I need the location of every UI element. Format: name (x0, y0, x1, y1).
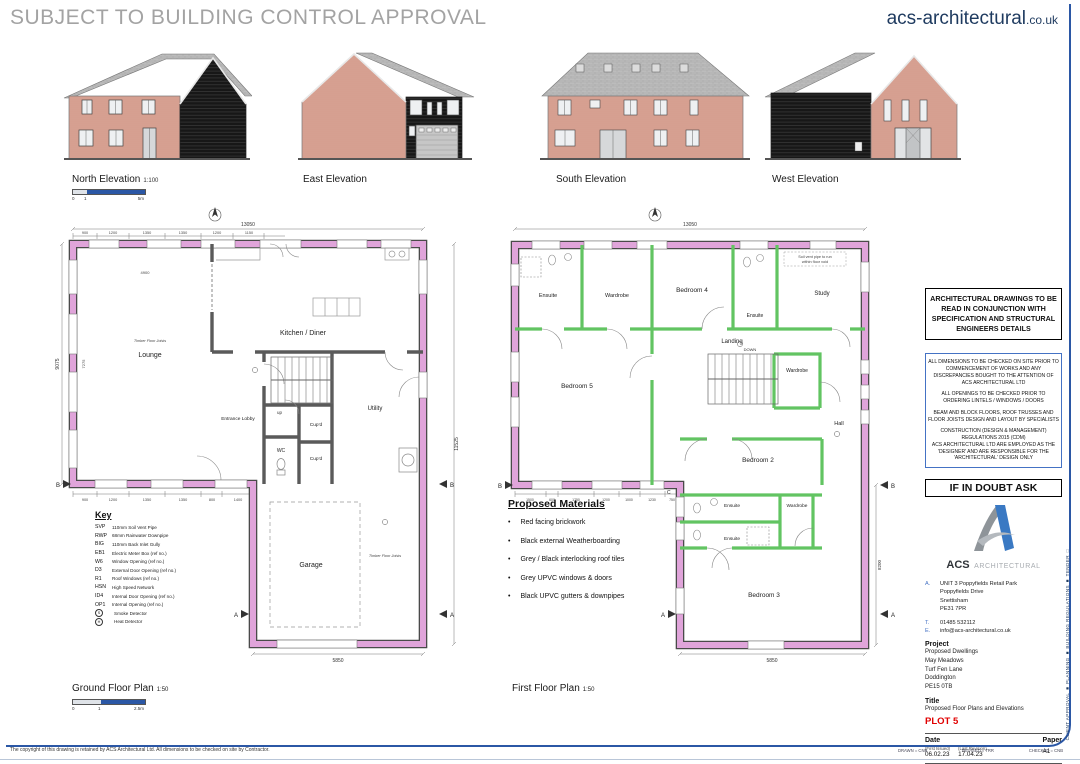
key-item: R1Roof Windows (ref no.) (95, 575, 245, 584)
east-elevation-drawing (296, 40, 476, 172)
room-label: Bedroom 4 (676, 287, 708, 294)
note-paragraph: ALL OPENINGS TO BE CHECKED PRIOR TO ORDE… (928, 391, 1059, 405)
svg-text:1150: 1150 (245, 231, 253, 235)
drawings-note-box: ARCHITECTURAL DRAWINGS TO BE READ IN CON… (925, 288, 1062, 340)
key-item: HSNHigh Speed Network (95, 583, 245, 592)
key-item: RWP68mm Rainwater Downpipe (95, 532, 245, 541)
proposed-materials: Proposed Materials •Red facing brickwork… (508, 498, 680, 612)
svg-text:1200: 1200 (109, 231, 117, 235)
material-item: •Grey / Black interlocking roof tiles (508, 556, 680, 563)
heat-detector-icon: H (95, 618, 103, 626)
website-name: acs-architectural (887, 8, 1026, 29)
stair-direction: up (277, 410, 283, 415)
svg-text:B: B (498, 484, 502, 490)
svg-text:800: 800 (209, 498, 215, 502)
email-address: info@acs-architectural.co.uk (940, 627, 1011, 635)
north-scalebar: 015m (72, 189, 146, 201)
room-label: Utility (368, 406, 383, 412)
material-item: •Grey UPVC windows & doors (508, 575, 680, 582)
room-label: Bedroom 2 (742, 457, 774, 464)
room-label: Wardrobe (787, 503, 808, 509)
svg-text:1200: 1200 (213, 231, 221, 235)
key-item: BIG110mm Back Inlet Gully (95, 540, 245, 549)
west-elevation-label: West Elevation (772, 174, 839, 185)
key-legend: Key SVP110mm Soil Vent Pipe RWP68mm Rain… (95, 510, 245, 626)
revised-by: REVISED = TRR (962, 748, 994, 753)
website-text: acs-architectural.co.uk (887, 8, 1058, 30)
bullet-icon: • (508, 556, 510, 563)
key-title: Key (95, 510, 245, 520)
drawing-title: Proposed Floor Plans and Elevations (925, 705, 1062, 714)
room-label: Bedroom 3 (748, 592, 780, 599)
key-item-smoke: SSmoke Detector (95, 609, 245, 618)
if-in-doubt-ask: IF IN DOUBT ASK (925, 479, 1062, 497)
svg-text:4900: 4900 (141, 270, 151, 275)
south-elevation-drawing (538, 40, 753, 172)
room-label: Cup'd (310, 422, 323, 428)
project-section: Project Proposed DwellingsMay MeadowsTur… (925, 641, 1062, 691)
dim-label: 9075 (55, 358, 61, 369)
key-item-heat: HHeat Detector (95, 618, 245, 627)
materials-title: Proposed Materials (508, 498, 680, 510)
dim-label: 13050 (241, 222, 255, 228)
status-checkboxes: CLIENT APPROVAL ■ PLANNING ■ BUILDING RE… (1065, 548, 1070, 740)
checked-by: CHECKED = CNB (1029, 748, 1063, 753)
room-label: Lounge (138, 352, 161, 359)
bullet-icon: • (508, 519, 510, 526)
svg-text:B: B (891, 484, 895, 490)
copyright-note: The copyright of this drawing is retaine… (10, 747, 270, 753)
title-block: IF IN DOUBT ASK ACS ARCHITECTURAL A.UNIT… (925, 479, 1062, 764)
dim-label: 5850 (332, 658, 343, 664)
bullet-icon: • (508, 538, 510, 545)
key-item: SVP110mm Soil Vent Pipe (95, 523, 245, 532)
material-item: •Black UPVC gutters & downpipes (508, 593, 680, 600)
room-label: Ensuite (747, 313, 764, 319)
svg-text:1400: 1400 (234, 498, 242, 502)
svp-note: within floor void (802, 260, 828, 264)
dim-label: 8200 (877, 559, 882, 570)
dim-label: 13050 (683, 222, 697, 228)
material-item: •Black external Weatherboarding (508, 538, 680, 545)
svg-text:Timber Floor Joists: Timber Floor Joists (369, 554, 401, 558)
svg-text:1350: 1350 (179, 498, 187, 502)
svg-text:7275: 7275 (81, 359, 86, 369)
material-item: •Red facing brickwork (508, 519, 680, 526)
notes-sidebar: ARCHITECTURAL DRAWINGS TO BE READ IN CON… (925, 288, 1062, 468)
west-elevation-drawing (763, 40, 963, 172)
title-section: Title Proposed Floor Plans and Elevation… (925, 698, 1062, 728)
address-block: A.UNIT 3 Poppyfields Retail ParkPoppyfie… (925, 580, 1062, 635)
north-elevation-label: North Elevation1:100 (72, 174, 158, 185)
svg-text:1350: 1350 (143, 498, 151, 502)
room-label: Hall (834, 421, 843, 427)
phone-number: 01485 532112 (940, 619, 975, 627)
key-item: ID4Internal Door Opening (ref no.) (95, 592, 245, 601)
acs-logo-icon (972, 503, 1016, 553)
general-notes-box: ALL DIMENSIONS TO BE CHECKED ON SITE PRI… (925, 353, 1062, 468)
room-label: Wardrobe (786, 368, 808, 374)
note-paragraph: CONSTRUCTION (DESIGN & MANAGEMENT) REGUL… (928, 428, 1059, 462)
note-paragraph: BEAM AND BLOCK FLOORS, ROOF TRUSSES AND … (928, 410, 1059, 424)
bullet-icon: • (508, 593, 510, 600)
room-label: Garage (299, 562, 322, 569)
company-logo: ACS ARCHITECTURAL (925, 503, 1062, 573)
east-elevation-label: East Elevation (303, 174, 367, 185)
note-paragraph: ALL DIMENSIONS TO BE CHECKED ON SITE PRI… (928, 359, 1059, 386)
room-label: Study (814, 291, 829, 297)
room-label: Entrance Lobby (221, 416, 255, 422)
north-elevation-drawing (62, 40, 252, 172)
svg-text:A: A (891, 613, 895, 619)
key-item: EB1Electric Meter Box (ref no.) (95, 549, 245, 558)
bullet-icon: • (508, 575, 510, 582)
svg-text:900: 900 (82, 498, 88, 502)
svg-text:A: A (450, 613, 454, 619)
south-elevation-label: South Elevation (556, 174, 626, 185)
dim-label: 11525 (454, 437, 460, 451)
svg-text:Timber Floor Joists: Timber Floor Joists (134, 339, 166, 343)
room-label: Wardrobe (605, 293, 629, 299)
svg-text:1350: 1350 (143, 231, 151, 235)
svg-text:1350: 1350 (179, 231, 187, 235)
svp-note: Soil vent pipe to run (798, 255, 832, 259)
west-windows (884, 100, 927, 121)
plot-number: PLOT 5 (925, 716, 1062, 727)
svg-text:900: 900 (82, 231, 88, 235)
website-tld: .co.uk (1026, 13, 1058, 27)
room-label: Cup'd (310, 456, 323, 462)
page-edge-line (0, 759, 1080, 760)
first-floor-label: First Floor Plan1:50 (512, 683, 594, 694)
date-paper-section: Date (First Issued)06.02.23 (Last Revisi… (925, 733, 1062, 758)
key-item: OP1Internal Opening (ref no.) (95, 600, 245, 609)
north-arrow-icon (209, 207, 221, 221)
stair-direction: DOWN (744, 347, 757, 352)
room-label: Bedroom 5 (561, 383, 593, 390)
room-label: Landing (721, 339, 742, 345)
approval-watermark: SUBJECT TO BUILDING CONTROL APPROVAL (10, 6, 487, 30)
north-arrow-icon (649, 207, 661, 221)
key-item: W6Window Opening (ref no.) (95, 557, 245, 566)
svg-text:C: C (667, 490, 671, 496)
room-label: Ensuite (724, 503, 740, 509)
key-item: D3External Door Opening (ref no.) (95, 566, 245, 575)
drawn-revised-checked: DRAWN = CNB REVISED = TRR CHECKED = CNB (898, 748, 1063, 753)
dim-label: 5850 (766, 658, 777, 664)
svg-text:B: B (56, 483, 60, 489)
smoke-detector-icon: S (95, 609, 103, 617)
room-label: Ensuite (539, 293, 557, 299)
svg-text:1200: 1200 (109, 498, 117, 502)
ground-floor-label: Ground Floor Plan1:50 (72, 683, 168, 694)
brand-name: ACS ARCHITECTURAL (946, 555, 1040, 573)
drawing-sheet: SUBJECT TO BUILDING CONTROL APPROVAL acs… (0, 0, 1080, 764)
room-label: Kitchen / Diner (280, 330, 327, 337)
ground-scalebar: 012.5m (72, 699, 146, 711)
svg-text:A: A (661, 613, 665, 619)
room-label: WC (277, 448, 286, 454)
drawn-by: DRAWN = CNB (898, 748, 927, 753)
svg-text:B: B (450, 483, 454, 489)
room-label: Ensuite (724, 536, 740, 542)
